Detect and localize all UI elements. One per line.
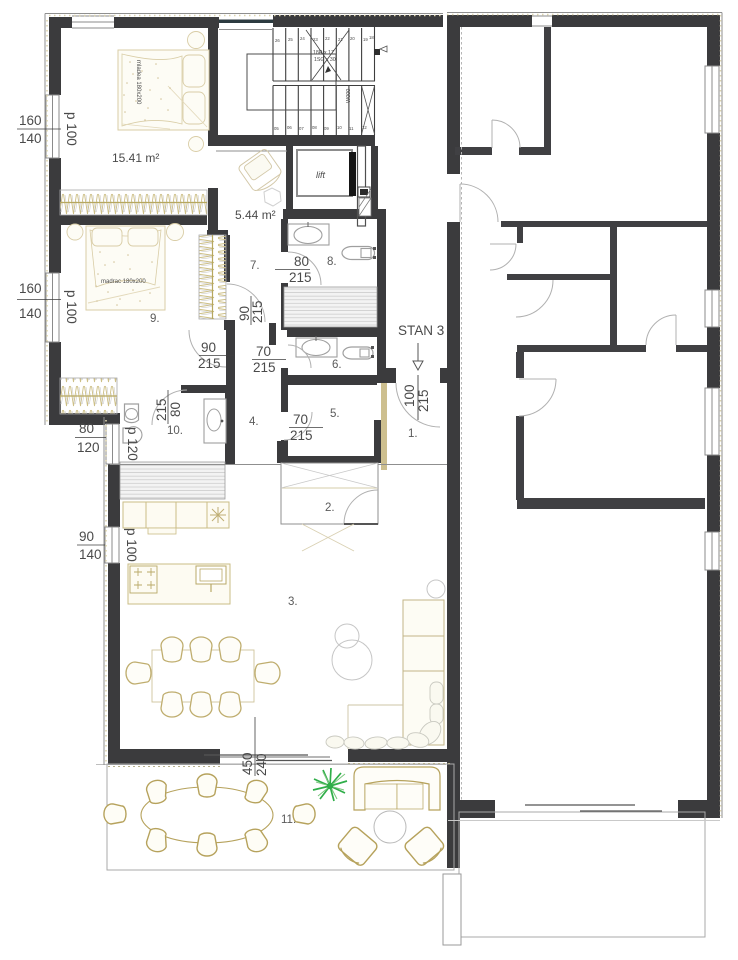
- svg-text:215: 215: [416, 389, 431, 412]
- svg-text:p 120: p 120: [125, 427, 140, 461]
- svg-text:12: 12: [362, 125, 367, 130]
- svg-text:20: 20: [350, 36, 355, 41]
- svg-text:160: 160: [19, 281, 42, 296]
- svg-text:15.41 m²: 15.41 m²: [112, 151, 159, 165]
- svg-text:120: 120: [77, 440, 100, 455]
- svg-text:100: 100: [402, 384, 417, 407]
- svg-text:215: 215: [290, 428, 313, 443]
- svg-text:08: 08: [312, 125, 317, 130]
- svg-text:80: 80: [168, 402, 183, 417]
- svg-text:p 100: p 100: [64, 112, 79, 146]
- svg-text:21: 21: [338, 37, 343, 42]
- svg-text:215: 215: [253, 360, 276, 375]
- svg-text:1.: 1.: [408, 428, 418, 440]
- svg-text:140: 140: [19, 306, 42, 321]
- svg-text:215: 215: [198, 356, 221, 371]
- svg-text:18R x 17: 18R x 17: [313, 50, 334, 56]
- svg-text:10.: 10.: [167, 425, 183, 437]
- svg-text:22: 22: [325, 36, 330, 41]
- svg-text:p 100: p 100: [124, 528, 139, 562]
- svg-text:450: 450: [240, 752, 255, 775]
- svg-text:09: 09: [324, 126, 329, 131]
- svg-text:80: 80: [294, 254, 309, 269]
- svg-text:p 100: p 100: [64, 290, 79, 324]
- svg-text:70: 70: [256, 344, 271, 359]
- svg-text:23: 23: [313, 37, 318, 42]
- svg-text:19: 19: [363, 37, 368, 42]
- svg-text:STAN 3: STAN 3: [398, 323, 444, 338]
- svg-text:W000: W000: [346, 89, 352, 103]
- svg-text:mladea 180x200: mladea 180x200: [135, 60, 141, 105]
- svg-text:11: 11: [349, 126, 354, 131]
- svg-text:24: 24: [300, 36, 305, 41]
- svg-text:11.: 11.: [281, 814, 296, 826]
- svg-text:215: 215: [154, 398, 169, 421]
- svg-text:140: 140: [79, 547, 102, 562]
- svg-text:90: 90: [79, 529, 94, 544]
- svg-text:70: 70: [293, 412, 308, 427]
- svg-text:2.: 2.: [325, 502, 335, 514]
- svg-text:7.: 7.: [250, 260, 260, 272]
- svg-text:06: 06: [287, 125, 292, 130]
- svg-text:215: 215: [250, 300, 265, 323]
- svg-text:160: 160: [19, 113, 42, 128]
- svg-text:3.: 3.: [288, 596, 298, 608]
- svg-text:18: 18: [369, 35, 374, 40]
- svg-text:4.: 4.: [249, 416, 259, 428]
- svg-text:140: 140: [19, 131, 42, 146]
- svg-text:05: 05: [274, 126, 279, 131]
- svg-text:5.: 5.: [330, 408, 340, 420]
- svg-text:10: 10: [337, 125, 342, 130]
- svg-text:215: 215: [289, 270, 312, 285]
- svg-text:90: 90: [201, 340, 216, 355]
- svg-text:5.44 m²: 5.44 m²: [235, 208, 276, 222]
- svg-text:8.: 8.: [327, 256, 337, 268]
- svg-text:80: 80: [79, 421, 94, 436]
- svg-text:madrac 180x200: madrac 180x200: [101, 279, 146, 285]
- svg-text:9.: 9.: [150, 313, 160, 325]
- svg-text:07: 07: [299, 126, 304, 131]
- svg-text:lift: lift: [316, 170, 325, 180]
- svg-text:6.: 6.: [332, 359, 342, 371]
- svg-text:25: 25: [288, 37, 293, 42]
- svg-text:26: 26: [275, 38, 280, 43]
- svg-text:1SG x 30: 1SG x 30: [314, 57, 336, 63]
